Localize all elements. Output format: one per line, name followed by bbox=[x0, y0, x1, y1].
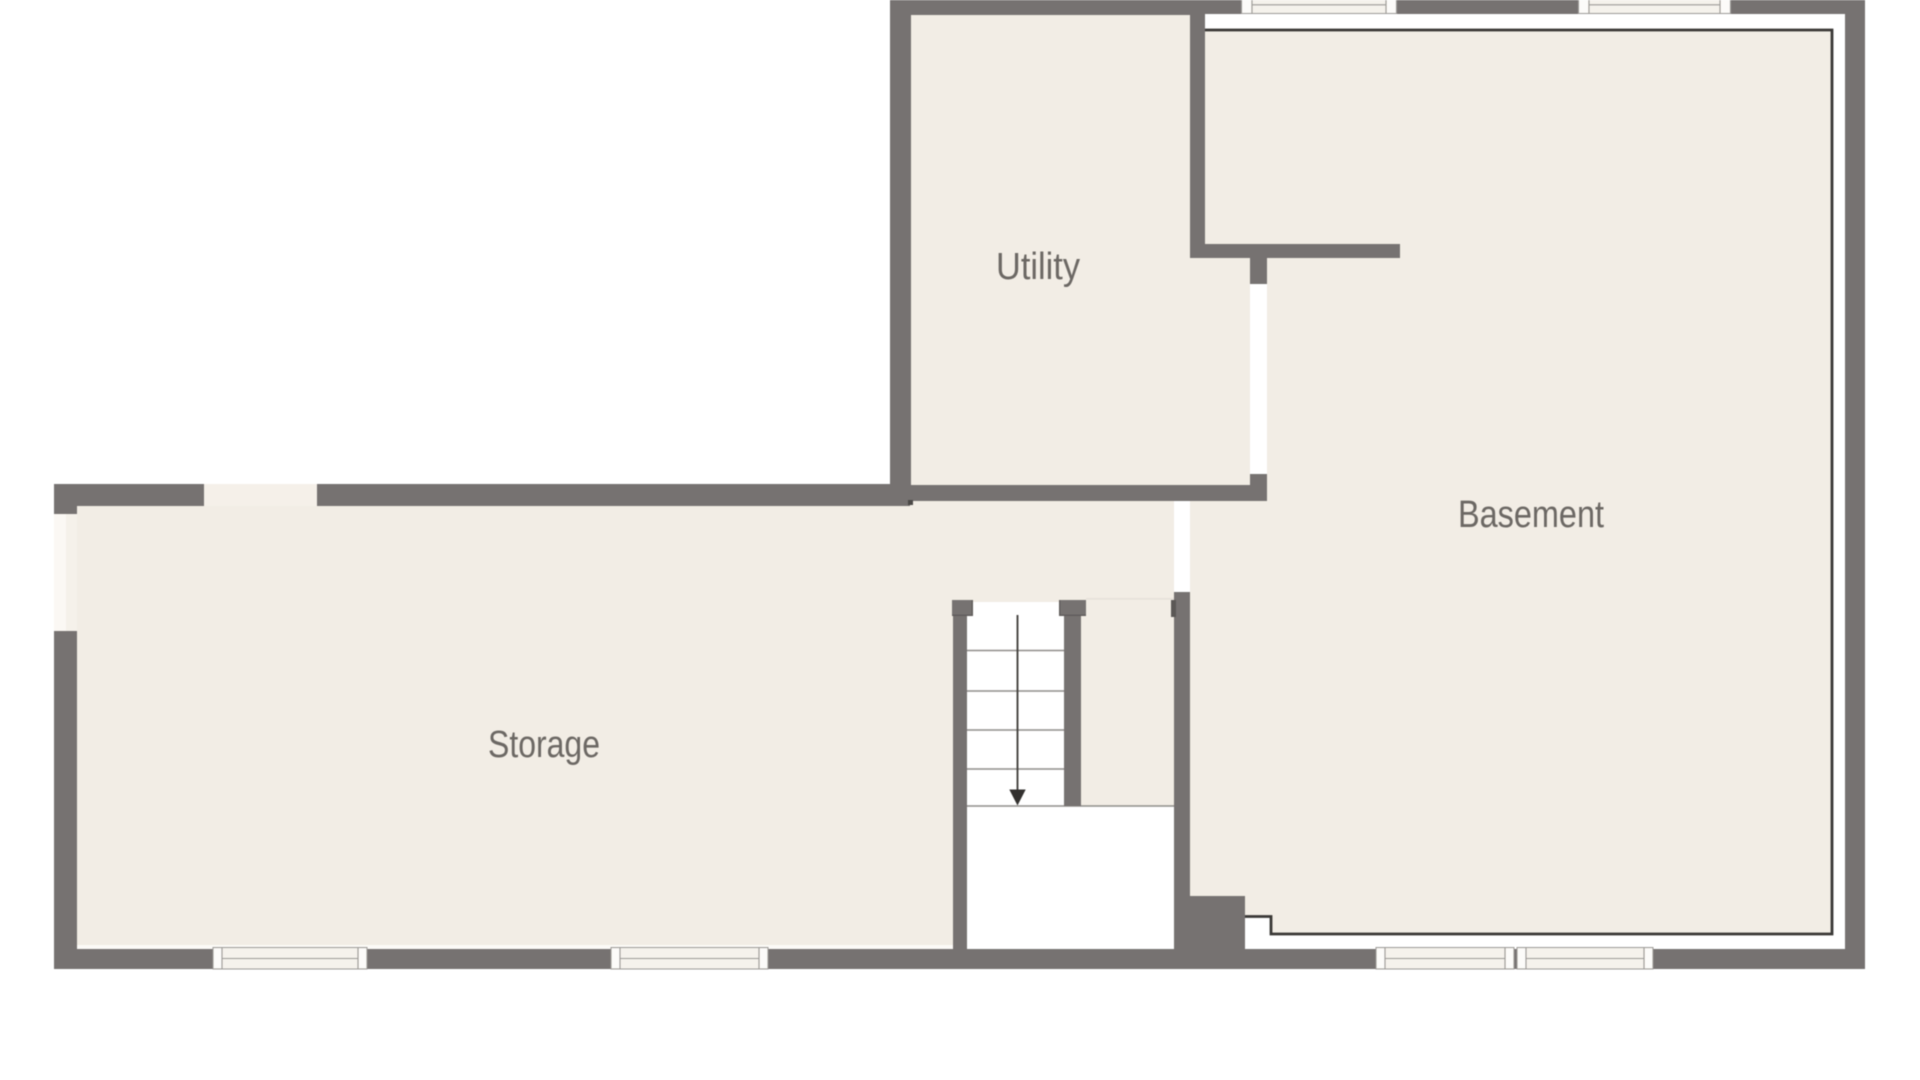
svg-text:Storage: Storage bbox=[488, 724, 600, 766]
svg-text:Utility: Utility bbox=[996, 246, 1080, 288]
svg-text:Basement: Basement bbox=[1458, 494, 1604, 536]
